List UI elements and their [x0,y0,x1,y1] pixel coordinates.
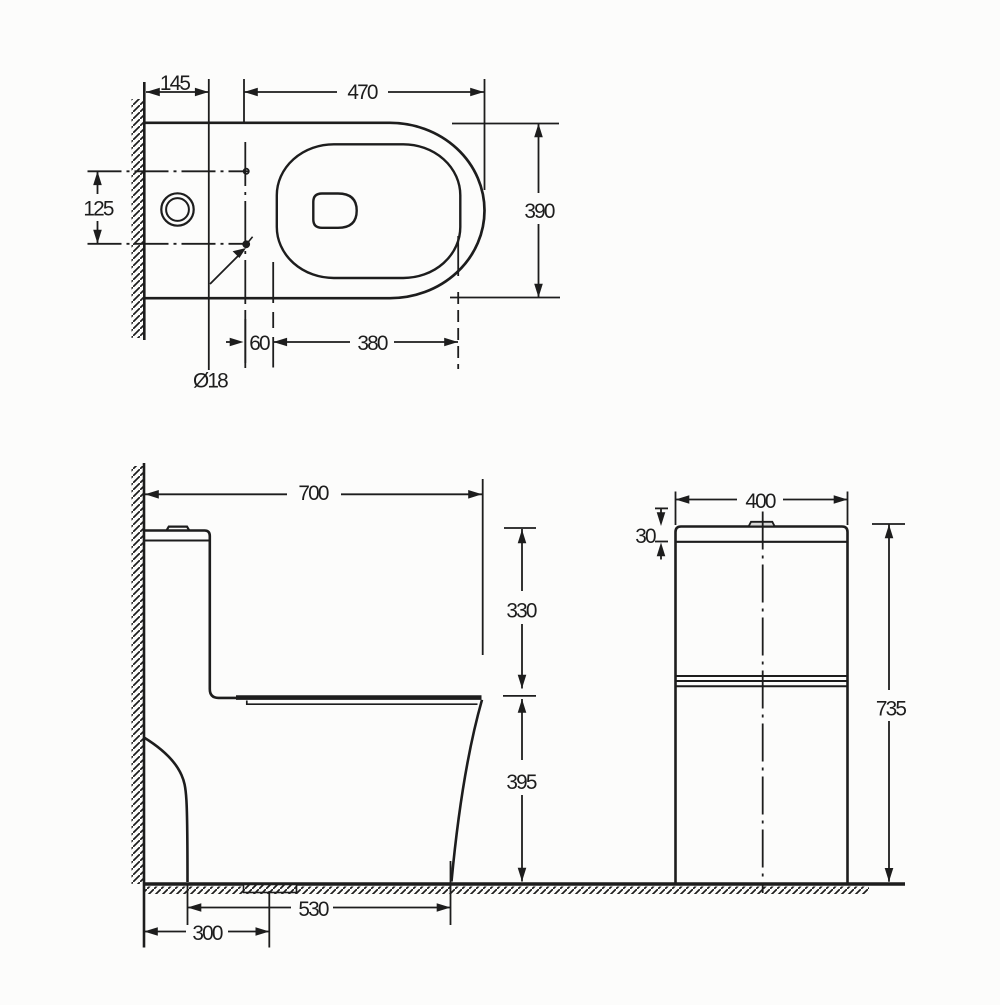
svg-text:530: 530 [298,898,329,921]
svg-text:380: 380 [357,332,388,355]
svg-text:60: 60 [249,332,270,355]
svg-text:735: 735 [876,698,907,721]
svg-text:400: 400 [745,490,776,513]
svg-text:700: 700 [298,482,329,505]
svg-text:30: 30 [635,525,656,548]
svg-text:470: 470 [347,81,378,104]
svg-text:390: 390 [524,200,555,223]
svg-text:Ø18: Ø18 [193,370,228,393]
svg-text:395: 395 [506,771,537,794]
svg-text:330: 330 [506,600,537,623]
svg-text:300: 300 [192,922,223,945]
svg-text:125: 125 [83,198,114,221]
svg-text:145: 145 [160,72,191,95]
